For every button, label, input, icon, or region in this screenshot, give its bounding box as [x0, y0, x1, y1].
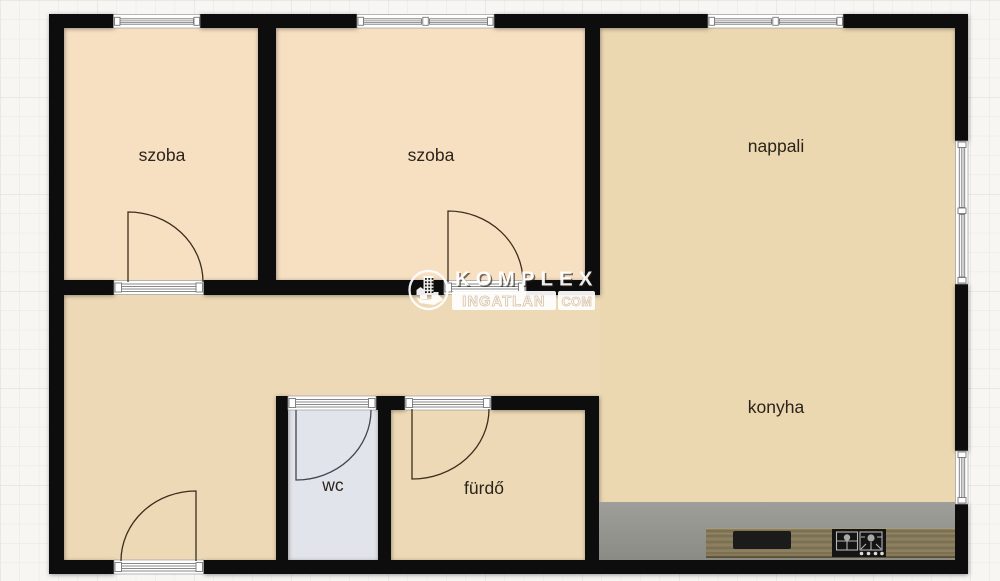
svg-text:INGATLAN: INGATLAN	[462, 294, 545, 310]
svg-text:konyha: konyha	[748, 397, 805, 417]
svg-text:szoba: szoba	[408, 145, 455, 165]
svg-text:wc: wc	[321, 475, 344, 495]
svg-text:fürdő: fürdő	[464, 478, 504, 498]
svg-text:szoba: szoba	[139, 145, 186, 165]
svg-text:nappali: nappali	[748, 136, 804, 156]
svg-text:KOMPLEX: KOMPLEX	[455, 268, 598, 291]
svg-text:COM: COM	[562, 295, 593, 309]
